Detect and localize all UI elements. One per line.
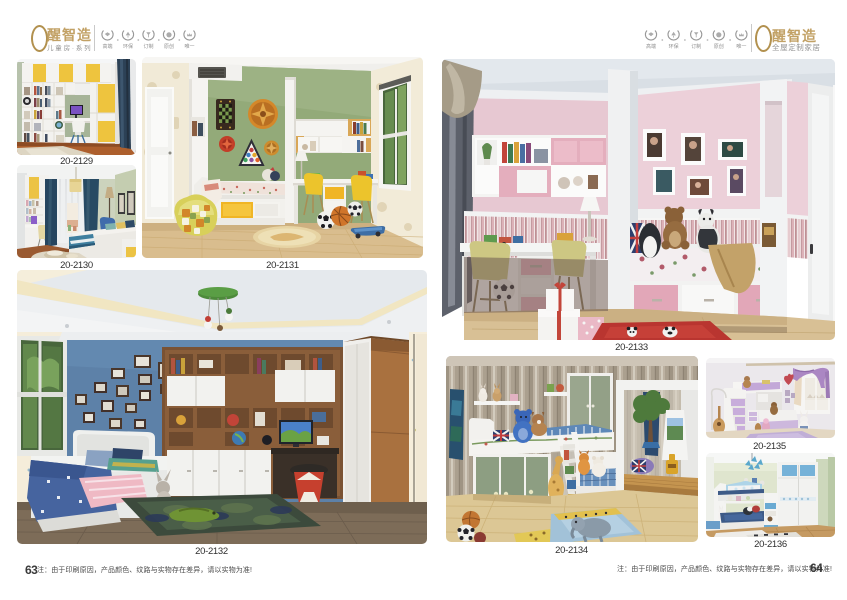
svg-text:订制: 订制 — [143, 43, 153, 50]
svg-text:环保: 环保 — [669, 43, 679, 50]
svg-text:环保: 环保 — [123, 43, 133, 50]
svg-text:原创: 原创 — [714, 43, 724, 50]
svg-text:订制: 订制 — [691, 43, 701, 50]
svg-text:高端: 高端 — [646, 43, 656, 50]
svg-text:唯一: 唯一 — [736, 43, 746, 50]
svg-text:高端: 高端 — [102, 43, 112, 50]
svg-text:原创: 原创 — [164, 43, 174, 50]
svg-text:唯一: 唯一 — [184, 43, 194, 50]
